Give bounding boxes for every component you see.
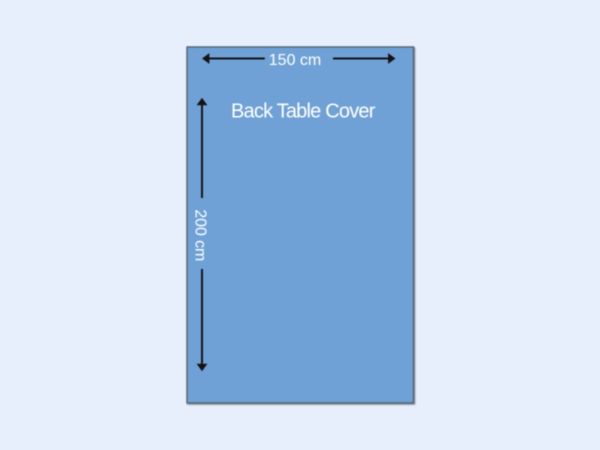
svg-text:200 cm: 200 cm bbox=[191, 209, 208, 261]
svg-text:Back Table Cover: Back Table Cover bbox=[231, 101, 376, 123]
svg-text:150 cm: 150 cm bbox=[269, 52, 321, 69]
